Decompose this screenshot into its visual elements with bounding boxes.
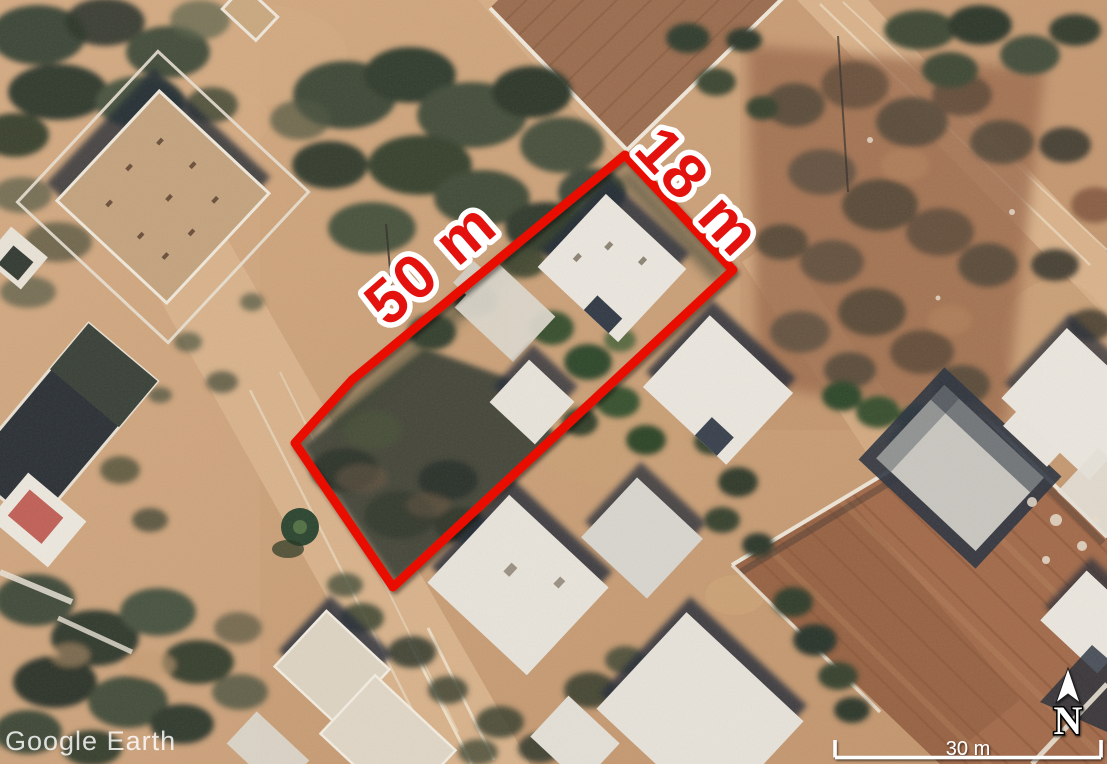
satellite-imagery: 50 m 18 m 30 m N Google Earth (0, 0, 1107, 764)
google-earth-watermark: Google Earth (5, 726, 176, 756)
satellite-map-view[interactable]: 50 m 18 m 30 m N Google Earth (0, 0, 1107, 764)
north-label: N (1054, 698, 1083, 743)
image-grain (0, 0, 1107, 764)
scale-bar-label: 30 m (946, 738, 990, 760)
